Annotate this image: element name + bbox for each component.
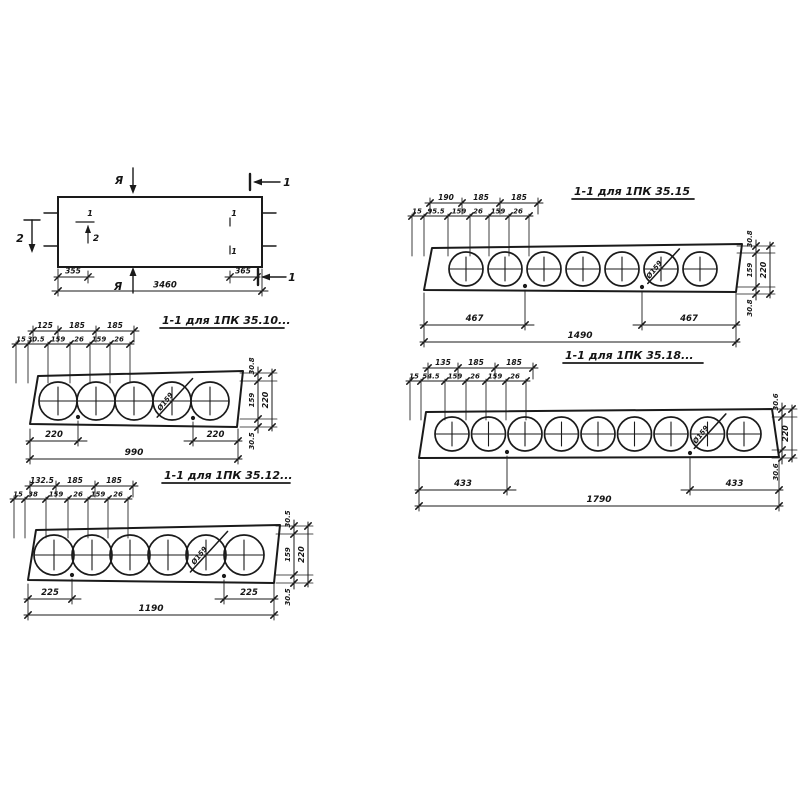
dim-label: 30.5 <box>284 510 292 527</box>
arrow-down-icon <box>29 244 36 253</box>
dim-label: 15 <box>16 336 26 344</box>
cut-label-1-bottom: 1 <box>288 271 296 284</box>
slab-sections-drawing: Я Я 1 1 2 1 2 1 1 <box>0 0 800 800</box>
dim-label-total: 1490 <box>567 331 592 341</box>
dim-label-total: 3460 <box>153 281 177 291</box>
dim-label: 15 <box>409 373 419 381</box>
dim-label: 15 <box>13 491 23 499</box>
dim-label: 26 <box>510 373 520 381</box>
section-1pk-35-18: 1-1 для 1ПК 35.18...Ø1591351851851554.51… <box>406 349 797 511</box>
dim-label: 355 <box>65 267 81 276</box>
arrow-left-icon <box>253 179 262 186</box>
dim-label: 30.6 <box>772 393 780 410</box>
section-title: 1-1 для 1ПК 35.18... <box>565 349 694 362</box>
dim-label: 30.5 <box>27 336 44 344</box>
dim-label: 125 <box>37 321 53 330</box>
section-1pk-35-12: 1-1 для 1ПК 35.12...Ø159132.518518515381… <box>10 469 313 620</box>
cut-label-2: 2 <box>16 232 24 245</box>
dim-label: 26 <box>473 208 483 216</box>
dim-label-total: 1190 <box>138 604 163 614</box>
section-title: 1-1 для 1ПК 35.10... <box>162 314 291 327</box>
dim-label: 30.5 <box>248 432 256 449</box>
dim-label: 30.8 <box>248 357 256 374</box>
dim-label: 15 <box>412 208 422 216</box>
dim-label: 185 <box>107 321 123 330</box>
dim-label: 159 <box>92 336 107 344</box>
dim-label: 467 <box>679 314 698 324</box>
dim-label: 159 <box>448 373 463 381</box>
dim-label-total: 1790 <box>586 495 611 505</box>
dim-label: 185 <box>473 193 489 202</box>
dim-label: 225 <box>41 588 59 598</box>
section-1pk-35-15: 1-1 для 1ПК 35.15Ø1591901851851595.51592… <box>408 185 775 347</box>
section-title: 1-1 для 1ПК 35.12... <box>164 469 293 482</box>
dim-label: 135 <box>435 358 451 367</box>
anchor-dot <box>505 450 509 454</box>
dim-label: 38 <box>28 491 38 499</box>
anchor-dot <box>76 415 80 419</box>
dim-label: 159 <box>488 373 503 381</box>
dim-label: 159 <box>284 547 292 562</box>
dim-label-total: 990 <box>125 448 144 458</box>
dim-label: 159 <box>452 208 467 216</box>
dim-label: 220 <box>45 430 63 440</box>
dim-label: 433 <box>453 479 472 489</box>
anchor-dot <box>70 573 74 577</box>
cut-label-1-top: 1 <box>283 176 291 189</box>
dim-label: 159 <box>49 491 64 499</box>
inner-mark-3: 1 <box>231 209 237 218</box>
dim-label: 185 <box>106 476 122 485</box>
plan-view: Я Я 1 1 2 1 2 1 1 <box>16 168 296 296</box>
inner-mark-4: 1 <box>231 247 237 256</box>
dim-label: 30.8 <box>746 230 754 247</box>
dim-label: 225 <box>240 588 258 598</box>
dim-label: 159 <box>51 336 66 344</box>
dim-label: 26 <box>513 208 523 216</box>
dim-label: 26 <box>74 336 84 344</box>
dim-label: 185 <box>69 321 85 330</box>
dim-label: 185 <box>468 358 484 367</box>
inner-mark-2: 2 <box>93 234 99 244</box>
dim-label: 26 <box>470 373 480 381</box>
arrow-down-icon <box>130 185 137 194</box>
dim-label: 159 <box>248 393 256 408</box>
dim-label: 220 <box>297 546 306 563</box>
dim-label: 365 <box>235 267 251 276</box>
dim-label: 26 <box>114 336 124 344</box>
arrow-up-icon <box>130 267 137 276</box>
dim-label: 185 <box>506 358 522 367</box>
dim-label: 220 <box>207 430 225 440</box>
inner-mark-1: 1 <box>87 209 93 218</box>
dim-label: 159 <box>746 263 754 278</box>
dim-label: 220 <box>261 391 270 408</box>
section-1pk-35-10: 1-1 для 1ПК 35.10...Ø1591251851851530.51… <box>12 314 291 464</box>
section-title: 1-1 для 1ПК 35.15 <box>574 185 690 198</box>
dim-label: 54.5 <box>422 373 439 381</box>
dim-label: 467 <box>465 314 484 324</box>
slab-outline <box>30 371 243 427</box>
view-mark-top: Я <box>114 174 124 187</box>
anchor-dot <box>688 451 692 455</box>
arrow-up-icon <box>85 225 91 233</box>
dim-label: 26 <box>113 491 123 499</box>
dim-label: 95.5 <box>427 208 444 216</box>
dim-label: 159 <box>91 491 106 499</box>
dim-label: 220 <box>781 425 790 442</box>
anchor-dot <box>523 284 527 288</box>
dim-label: 220 <box>759 261 768 278</box>
dim-label: 30.8 <box>746 299 754 316</box>
dim-label: 30.5 <box>284 588 292 605</box>
anchor-dot <box>191 416 195 420</box>
anchor-dot <box>640 285 644 289</box>
anchor-dot <box>222 574 226 578</box>
blueprint-page: Я Я 1 1 2 1 2 1 1 <box>0 0 800 800</box>
dim-label: 159 <box>491 208 506 216</box>
dim-label: 185 <box>67 476 83 485</box>
dim-label: 185 <box>511 193 527 202</box>
dim-label: 132.5 <box>30 476 54 485</box>
dim-label: 26 <box>73 491 83 499</box>
dim-label: 433 <box>725 479 744 489</box>
dim-label: 190 <box>438 193 454 202</box>
